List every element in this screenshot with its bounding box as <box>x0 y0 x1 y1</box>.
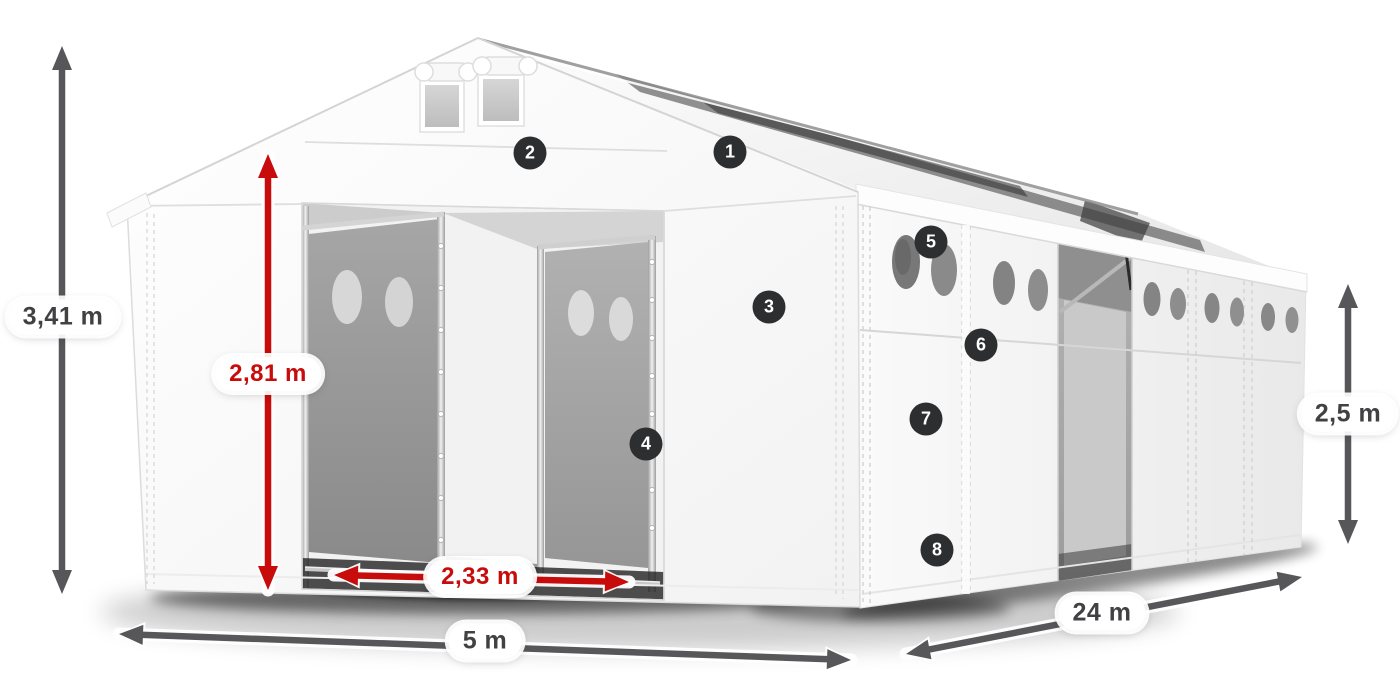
feature-marker-3[interactable]: 3 <box>753 291 786 324</box>
feature-marker-8[interactable]: 8 <box>921 534 954 567</box>
dimension-label-entrance-width: 2,33 m <box>427 560 533 594</box>
feature-marker-5[interactable]: 5 <box>915 226 948 259</box>
dimension-label-front-width: 5 m <box>449 624 522 659</box>
dimension-label-side-height: 2,5 m <box>1301 397 1395 432</box>
dimension-label-side-length: 24 m <box>1059 596 1146 631</box>
feature-marker-7[interactable]: 7 <box>910 403 943 436</box>
feature-marker-1[interactable]: 1 <box>714 136 747 169</box>
dimension-label-total-height: 3,41 m <box>9 300 118 335</box>
annotation-layer: 3,41 m2,81 m2,33 m5 m24 m2,5 m12345678 <box>0 0 1400 700</box>
product-visualization: 3,41 m2,81 m2,33 m5 m24 m2,5 m12345678 <box>0 0 1400 700</box>
feature-marker-2[interactable]: 2 <box>514 137 547 170</box>
feature-marker-6[interactable]: 6 <box>965 329 998 362</box>
feature-marker-4[interactable]: 4 <box>630 428 663 461</box>
dimension-label-entrance-height: 2,81 m <box>215 357 321 391</box>
